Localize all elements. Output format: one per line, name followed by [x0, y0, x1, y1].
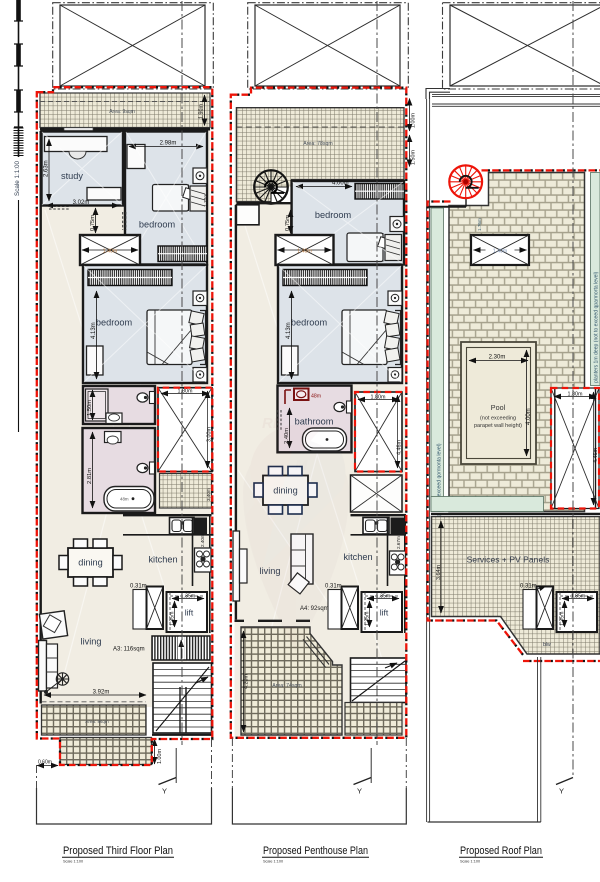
svg-text:Scale 1:1:00: Scale 1:1:00 — [14, 160, 21, 196]
svg-text:2.81m: 2.81m — [87, 468, 93, 484]
svg-text:kitchen: kitchen — [343, 552, 372, 562]
svg-text:living: living — [81, 637, 102, 647]
svg-text:1.40m: 1.40m — [297, 249, 311, 255]
svg-text:Area: 78sqm: Area: 78sqm — [303, 141, 332, 147]
svg-text:A3: 116sqm: A3: 116sqm — [113, 647, 145, 653]
svg-text:bedroom: bedroom — [291, 318, 328, 328]
svg-text:2.63m: 2.63m — [44, 160, 50, 177]
svg-text:2.67m: 2.67m — [396, 536, 401, 549]
svg-text:1.40m: 1.40m — [103, 249, 117, 255]
svg-text:1.80m: 1.80m — [178, 389, 193, 395]
svg-text:4.13m: 4.13m — [91, 322, 97, 339]
svg-text:Scale 1:100: Scale 1:100 — [63, 860, 83, 864]
svg-text:1.35m: 1.35m — [365, 612, 371, 626]
svg-text:1.35m: 1.35m — [181, 594, 195, 600]
svg-text:3.64m: 3.64m — [436, 565, 442, 580]
svg-text:48m: 48m — [311, 394, 321, 400]
svg-text:48m: 48m — [120, 497, 129, 502]
svg-text:Proposed Third Floor Plan: Proposed Third Floor Plan — [63, 845, 173, 857]
svg-text:Y: Y — [559, 787, 564, 796]
svg-text:Y: Y — [357, 787, 362, 796]
svg-text:1.80m: 1.80m — [371, 395, 386, 401]
svg-text:Proposed Roof Plan: Proposed Roof Plan — [460, 845, 542, 857]
svg-text:dining: dining — [78, 558, 103, 568]
svg-text:bedroom: bedroom — [139, 220, 176, 230]
svg-text:lift: lift — [185, 608, 194, 618]
svg-text:Area: 8sqm: Area: 8sqm — [85, 719, 109, 724]
svg-text:3.92m: 3.92m — [93, 690, 110, 696]
svg-text:bedroom: bedroom — [315, 210, 352, 220]
svg-text:1.35m: 1.35m — [170, 612, 176, 626]
svg-text:Area: 9sqm: Area: 9sqm — [109, 109, 135, 115]
svg-text:planters 1m deep (not to exce: planters 1m deep (not to exceed qparmort… — [594, 271, 600, 383]
svg-text:4.46m: 4.46m — [397, 440, 403, 455]
svg-text:4.00m: 4.00m — [526, 408, 532, 425]
svg-text:M: M — [295, 457, 308, 474]
svg-text:0.31m: 0.31m — [130, 584, 147, 590]
svg-text:bedroom: bedroom — [96, 318, 133, 328]
svg-text:parapet wall height): parapet wall height) — [474, 423, 522, 429]
svg-text:1.90m: 1.90m — [199, 104, 205, 119]
svg-text:1.76m: 1.76m — [477, 218, 482, 231]
svg-text:Services + PV Panels: Services + PV Panels — [467, 555, 550, 565]
svg-text:study: study — [61, 171, 83, 181]
svg-text:Scale 1:100: Scale 1:100 — [263, 860, 283, 864]
svg-text:2.98m: 2.98m — [160, 141, 177, 147]
svg-text:1.00m: 1.00m — [157, 749, 163, 764]
svg-text:1.35m: 1.35m — [376, 594, 390, 600]
svg-text:1.80m: 1.80m — [568, 392, 583, 398]
svg-text:3.02m: 3.02m — [73, 200, 90, 206]
svg-text:0.60m: 0.60m — [38, 760, 52, 766]
svg-text:2.30m: 2.30m — [489, 355, 506, 361]
svg-text:4.20m: 4.20m — [244, 674, 250, 689]
svg-text:lift: lift — [380, 608, 389, 618]
svg-text:Area: 74sqm: Area: 74sqm — [272, 683, 301, 689]
svg-text:4.00m: 4.00m — [332, 181, 349, 187]
svg-text:Proposed Penthouse Plan: Proposed Penthouse Plan — [263, 845, 368, 857]
svg-text:1.40m: 1.40m — [493, 249, 507, 255]
svg-text:2.40m: 2.40m — [200, 534, 205, 547]
svg-text:0.31m: 0.31m — [520, 584, 537, 590]
svg-text:1.70m: 1.70m — [203, 194, 209, 207]
svg-text:blw: blw — [543, 642, 551, 648]
svg-text:1.00m: 1.00m — [411, 113, 417, 128]
svg-text:1.50m: 1.50m — [411, 150, 417, 165]
svg-text:0.75m: 0.75m — [285, 215, 291, 231]
svg-text:kitchen: kitchen — [148, 555, 177, 565]
svg-text:Pool: Pool — [491, 403, 506, 412]
svg-text:1.35m: 1.35m — [560, 612, 566, 626]
svg-text:Y: Y — [162, 787, 167, 796]
svg-text:Scale 1:100: Scale 1:100 — [460, 860, 480, 864]
svg-text:0.75m: 0.75m — [90, 215, 96, 231]
svg-text:1.50m: 1.50m — [87, 400, 93, 416]
svg-text:4.13m: 4.13m — [286, 322, 292, 339]
svg-text:RE: RE — [262, 415, 284, 432]
svg-text:(not exceeding: (not exceeding — [480, 416, 516, 422]
svg-text:3.40m: 3.40m — [206, 488, 211, 501]
